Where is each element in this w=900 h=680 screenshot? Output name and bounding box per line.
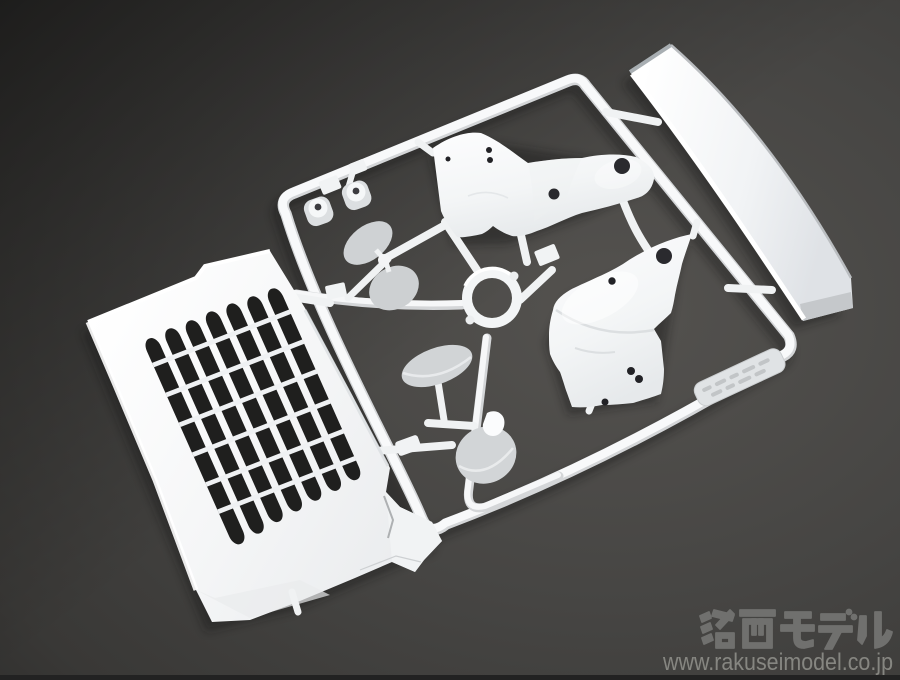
svg-text:www.rakuseimodel.co.jp: www.rakuseimodel.co.jp <box>662 649 893 675</box>
